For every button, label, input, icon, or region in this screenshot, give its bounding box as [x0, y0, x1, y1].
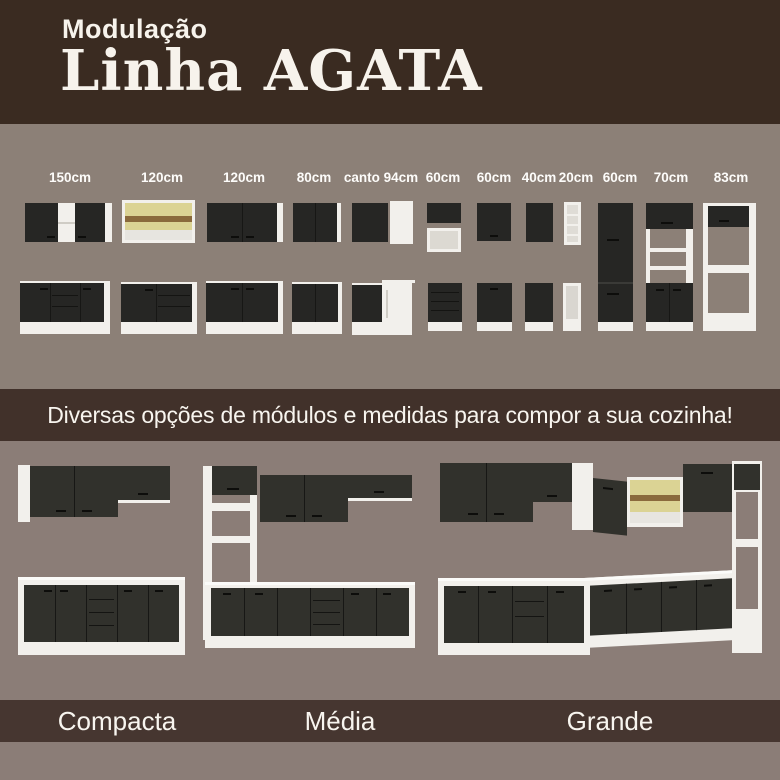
module-base-60cm-drawers	[428, 283, 462, 331]
module-kit-83cm	[703, 203, 756, 331]
module-base-120cm-b	[206, 281, 283, 334]
module-wall-120cm-glass	[122, 200, 195, 243]
header: Modulação Linha AGATA	[0, 0, 780, 124]
module-shelf-20cm	[564, 202, 581, 245]
module-base-20cm	[563, 283, 581, 331]
module-wall-150cm	[25, 203, 112, 242]
page-title: Linha AGATA	[60, 38, 483, 104]
module-tall-60cm	[598, 203, 633, 331]
banner-band: Diversas opções de módulos e medidas par…	[0, 389, 780, 441]
label-grande: Grande	[550, 706, 670, 737]
module-wall-120cm	[207, 203, 283, 242]
module-wall-canto-94cm	[352, 201, 413, 244]
module-base-120cm-a	[121, 282, 197, 334]
module-base-150cm	[20, 281, 110, 334]
banner-text: Diversas opções de módulos e medidas par…	[47, 402, 732, 429]
label-media: Média	[280, 706, 400, 737]
module-wall-40cm	[526, 203, 553, 242]
fridge-kit	[732, 461, 762, 653]
module-base-40cm	[525, 283, 553, 331]
module-base-80cm	[292, 282, 342, 334]
module-wall-80cm	[293, 203, 341, 242]
module-base-60cm	[477, 283, 512, 331]
product-banner: Modulação Linha AGATA 150cm 120cm 120cm …	[0, 0, 780, 780]
size-label-3: 120cm	[204, 170, 284, 188]
size-label-1: 150cm	[30, 170, 110, 188]
size-label-2: 120cm	[122, 170, 202, 188]
module-base-canto-94cm	[352, 280, 415, 335]
size-label-12: 83cm	[691, 170, 771, 188]
module-wall-60cm-top	[427, 203, 461, 223]
label-compacta: Compacta	[57, 706, 177, 737]
module-tall-70cm	[646, 203, 693, 331]
module-wall-60cm	[477, 203, 511, 241]
module-wall-60cm-niche	[427, 228, 461, 252]
